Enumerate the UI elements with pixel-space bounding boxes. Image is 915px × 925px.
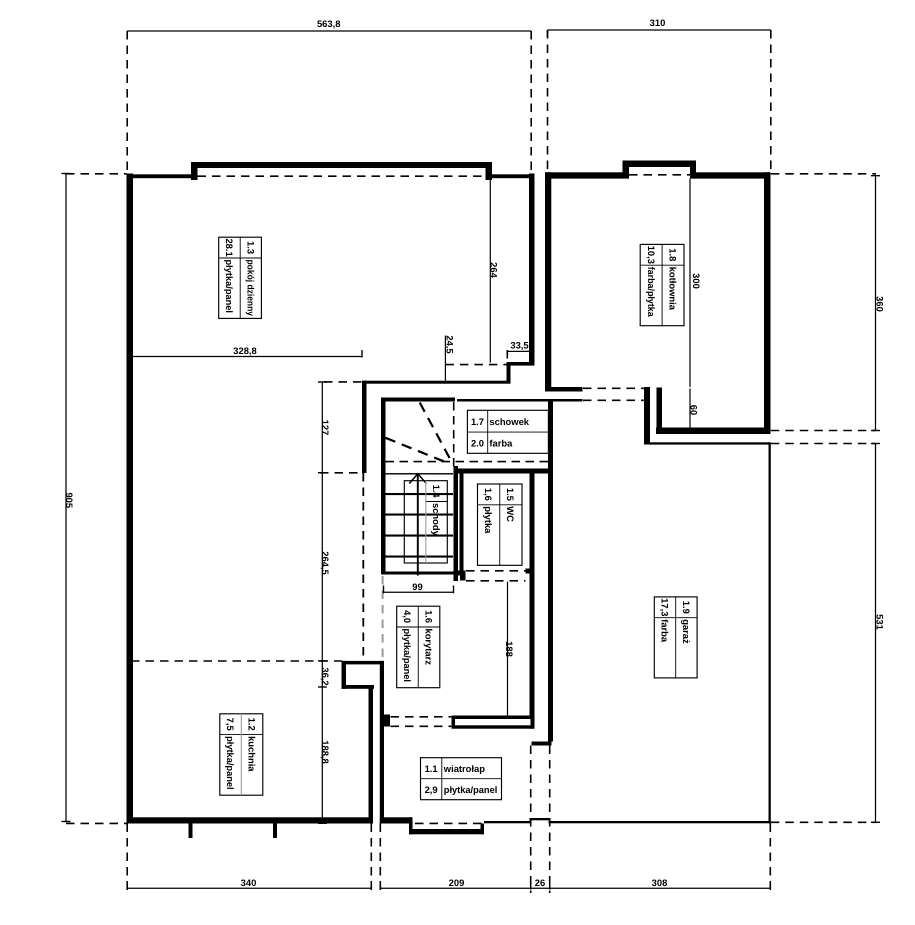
svg-text:264: 264	[489, 262, 500, 278]
svg-text:99: 99	[412, 581, 422, 592]
svg-text:2,9: 2,9	[425, 784, 438, 795]
svg-text:188,8: 188,8	[320, 740, 331, 763]
svg-text:328,8: 328,8	[233, 345, 256, 356]
svg-text:płytka: płytka	[483, 506, 494, 534]
svg-text:kuchnia: kuchnia	[247, 736, 258, 772]
svg-text:26: 26	[535, 877, 545, 888]
svg-text:1.8: 1.8	[668, 248, 679, 261]
svg-text:WC: WC	[505, 506, 516, 522]
svg-text:1.4: 1.4	[431, 485, 442, 499]
svg-text:33,5: 33,5	[510, 339, 528, 350]
svg-text:563,8: 563,8	[317, 18, 340, 29]
svg-text:garaż: garaż	[681, 619, 692, 644]
svg-text:60: 60	[689, 405, 700, 415]
svg-text:schowek: schowek	[489, 416, 529, 427]
svg-text:1.9: 1.9	[681, 601, 692, 614]
svg-text:płytka/panel: płytka/panel	[225, 736, 236, 790]
svg-text:905: 905	[64, 492, 75, 508]
svg-text:pokój dzienny: pokój dzienny	[245, 260, 256, 317]
svg-text:farba: farba	[660, 619, 671, 643]
svg-text:28.1: 28.1	[224, 238, 235, 256]
svg-text:17,3: 17,3	[660, 598, 671, 616]
svg-text:schody: schody	[431, 503, 442, 537]
svg-text:płytka/panel: płytka/panel	[444, 784, 498, 795]
svg-text:farba/płytka: farba/płytka	[646, 267, 657, 318]
svg-text:1,6: 1,6	[483, 488, 494, 501]
svg-text:264,5: 264,5	[320, 551, 331, 574]
svg-text:127: 127	[320, 420, 331, 436]
svg-text:7,5: 7,5	[225, 718, 236, 731]
svg-text:1.6: 1.6	[424, 610, 435, 623]
svg-text:korytarz: korytarz	[424, 629, 435, 666]
svg-text:wiatrołap: wiatrołap	[443, 763, 485, 774]
svg-text:36,2: 36,2	[320, 667, 331, 685]
svg-text:188: 188	[504, 641, 515, 657]
svg-text:10,3: 10,3	[646, 246, 657, 264]
svg-text:4,0: 4,0	[402, 610, 413, 623]
svg-text:308: 308	[652, 877, 668, 888]
svg-text:360: 360	[875, 296, 886, 312]
svg-text:531: 531	[875, 614, 886, 630]
svg-text:płytka/panel: płytka/panel	[402, 629, 413, 683]
svg-text:kotłownia: kotłownia	[668, 267, 679, 311]
svg-text:1.1: 1.1	[425, 763, 438, 774]
svg-text:farba: farba	[489, 437, 513, 448]
svg-text:300: 300	[691, 273, 702, 289]
svg-text:209: 209	[449, 877, 465, 888]
svg-text:1.2: 1.2	[247, 718, 258, 731]
svg-text:24,5: 24,5	[444, 335, 455, 353]
svg-text:1.3: 1.3	[245, 241, 256, 254]
svg-text:340: 340	[241, 877, 257, 888]
svg-text:1.7: 1.7	[471, 416, 484, 427]
svg-text:310: 310	[650, 17, 666, 28]
svg-text:2.0: 2.0	[471, 437, 484, 448]
svg-text:płytka/panel: płytka/panel	[224, 260, 235, 314]
svg-text:1.5: 1.5	[505, 488, 516, 501]
